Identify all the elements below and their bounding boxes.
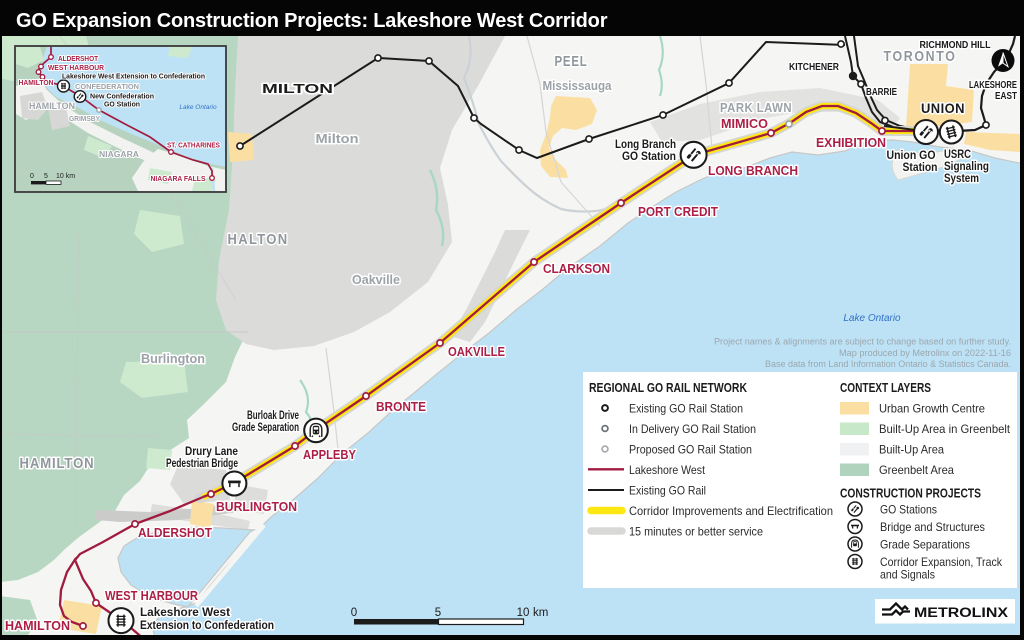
svg-text:In Delivery GO Rail Station: In Delivery GO Rail Station <box>629 422 756 436</box>
svg-text:Greenbelt Area: Greenbelt Area <box>879 463 954 477</box>
svg-text:Existing GO Rail Station: Existing GO Rail Station <box>629 402 743 416</box>
svg-text:Built-Up Area in Greenbelt: Built-Up Area in Greenbelt <box>879 422 1011 436</box>
svg-text:Urban Growth Centre: Urban Growth Centre <box>879 402 985 416</box>
svg-text:Base data from Land Informatio: Base data from Land Information Ontario … <box>765 359 1011 370</box>
svg-text:MIMICO: MIMICO <box>721 117 768 131</box>
svg-text:Grade Separation: Grade Separation <box>232 422 299 434</box>
svg-text:PARK LAWN: PARK LAWN <box>720 101 792 115</box>
svg-text:Project names & alignments are: Project names & alignments are subject t… <box>714 337 1011 348</box>
svg-text:Proposed GO Rail Station: Proposed GO Rail Station <box>629 443 752 457</box>
svg-text:WEST HARBOUR: WEST HARBOUR <box>48 65 104 72</box>
svg-text:Milton: Milton <box>316 132 359 146</box>
svg-text:HAMILTON: HAMILTON <box>5 619 70 633</box>
svg-text:GO Station: GO Station <box>104 102 140 109</box>
svg-text:Lakeshore West: Lakeshore West <box>629 463 706 477</box>
svg-text:EAST: EAST <box>995 91 1017 102</box>
svg-text:KITCHENER: KITCHENER <box>789 62 840 73</box>
svg-text:BURLINGTON: BURLINGTON <box>216 500 297 514</box>
svg-text:Oakville: Oakville <box>352 273 400 287</box>
svg-text:km: km <box>533 607 548 619</box>
svg-text:NIAGARA: NIAGARA <box>99 150 139 159</box>
svg-text:CONSTRUCTION PROJECTS: CONSTRUCTION PROJECTS <box>840 487 981 501</box>
svg-text:OAKVILLE: OAKVILLE <box>448 345 505 359</box>
svg-text:10 km: 10 km <box>56 173 75 180</box>
svg-text:ALDERSHOT: ALDERSHOT <box>138 526 212 540</box>
svg-text:Corridor Improvements and Elec: Corridor Improvements and Electrificatio… <box>629 504 833 518</box>
svg-text:Signaling: Signaling <box>944 161 989 173</box>
svg-text:Lake Ontario: Lake Ontario <box>843 313 901 324</box>
svg-text:CLARKSON: CLARKSON <box>543 262 610 276</box>
svg-text:Lake Ontario: Lake Ontario <box>179 104 217 111</box>
svg-text:USRC: USRC <box>944 149 971 161</box>
svg-text:5: 5 <box>44 173 48 180</box>
svg-text:WEST HARBOUR: WEST HARBOUR <box>105 589 198 603</box>
svg-text:10: 10 <box>517 607 530 619</box>
svg-text:Station: Station <box>903 162 938 174</box>
svg-text:REGIONAL GO RAIL NETWORK: REGIONAL GO RAIL NETWORK <box>589 381 747 395</box>
svg-text:New Confederation: New Confederation <box>90 94 154 101</box>
svg-text:LONG BRANCH: LONG BRANCH <box>708 164 798 178</box>
svg-text:0: 0 <box>351 607 357 619</box>
svg-text:GO Expansion Construction Proj: GO Expansion Construction Projects: Lake… <box>16 10 608 32</box>
svg-text:5: 5 <box>435 607 441 619</box>
svg-text:Drury Lane: Drury Lane <box>185 446 238 458</box>
svg-text:15 minutes or better service: 15 minutes or better service <box>629 525 763 539</box>
svg-text:Mississauga: Mississauga <box>543 79 613 93</box>
svg-text:Burloak Drive: Burloak Drive <box>247 410 299 422</box>
svg-text:Burlington: Burlington <box>141 352 205 366</box>
svg-text:RICHMOND HILL: RICHMOND HILL <box>920 40 991 51</box>
svg-text:HAMILTON: HAMILTON <box>19 80 54 87</box>
svg-text:HALTON: HALTON <box>228 231 289 248</box>
svg-text:ST. CATHARINES: ST. CATHARINES <box>167 143 220 150</box>
svg-text:EXHIBITION: EXHIBITION <box>816 136 886 150</box>
svg-text:Union GO: Union GO <box>887 150 936 162</box>
svg-text:PEEL: PEEL <box>555 53 588 70</box>
svg-text:Map produced by Metrolinx on 2: Map produced by Metrolinx on 2022-11-16 <box>839 348 1011 359</box>
svg-text:Existing GO Rail: Existing GO Rail <box>629 484 706 498</box>
svg-text:CONFEDERATION: CONFEDERATION <box>75 84 139 91</box>
svg-text:HAMILTON: HAMILTON <box>29 101 75 111</box>
svg-text:BARRIE: BARRIE <box>866 87 897 98</box>
svg-text:Lakeshore West Extension to Co: Lakeshore West Extension to Confederatio… <box>62 74 205 81</box>
svg-text:GO Stations: GO Stations <box>880 503 937 517</box>
svg-text:Lakeshore West: Lakeshore West <box>140 607 230 619</box>
svg-text:GO Station: GO Station <box>622 151 676 163</box>
svg-text:PORT CREDIT: PORT CREDIT <box>638 205 718 219</box>
svg-text:MILTON: MILTON <box>262 82 333 96</box>
svg-text:NIAGARA FALLS: NIAGARA FALLS <box>151 176 206 183</box>
svg-text:System: System <box>944 173 979 185</box>
svg-text:CONTEXT LAYERS: CONTEXT LAYERS <box>840 381 931 395</box>
svg-text:BRONTE: BRONTE <box>376 400 426 414</box>
svg-text:LAKESHORE: LAKESHORE <box>969 80 1017 91</box>
svg-text:Grade Separations: Grade Separations <box>880 538 970 552</box>
svg-text:Long Branch: Long Branch <box>615 139 676 151</box>
svg-text:and Signals: and Signals <box>880 568 935 582</box>
svg-text:HAMILTON: HAMILTON <box>20 455 95 472</box>
svg-text:ALDERSHOT: ALDERSHOT <box>58 56 99 63</box>
svg-text:Bridge and Structures: Bridge and Structures <box>880 520 985 534</box>
svg-text:0: 0 <box>30 173 34 180</box>
svg-text:Extension to Confederation: Extension to Confederation <box>140 620 274 632</box>
svg-text:Built-Up Area: Built-Up Area <box>879 443 944 457</box>
svg-text:GRIMSBY: GRIMSBY <box>69 116 100 123</box>
svg-text:UNION: UNION <box>921 100 965 116</box>
svg-text:Pedestrian Bridge: Pedestrian Bridge <box>166 458 238 470</box>
svg-text:APPLEBY: APPLEBY <box>303 448 357 462</box>
svg-text:METROLINX: METROLINX <box>914 605 1008 620</box>
